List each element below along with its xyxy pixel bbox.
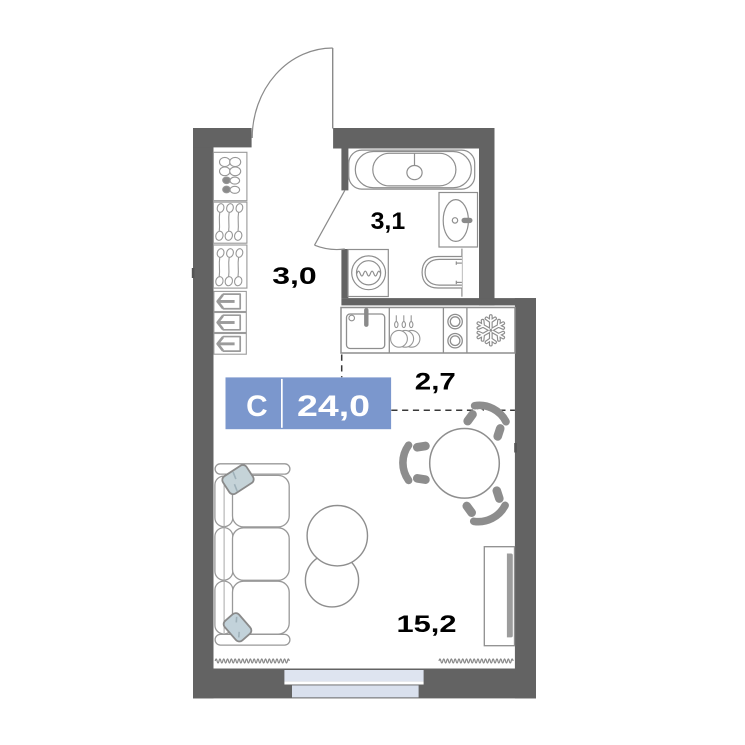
svg-text:С: С xyxy=(246,390,268,423)
svg-text:24,0: 24,0 xyxy=(297,390,370,423)
svg-text:2,7: 2,7 xyxy=(415,369,456,395)
svg-text:15,2: 15,2 xyxy=(397,612,457,638)
svg-text:3,0: 3,0 xyxy=(272,264,317,290)
svg-text:3,1: 3,1 xyxy=(371,209,406,235)
